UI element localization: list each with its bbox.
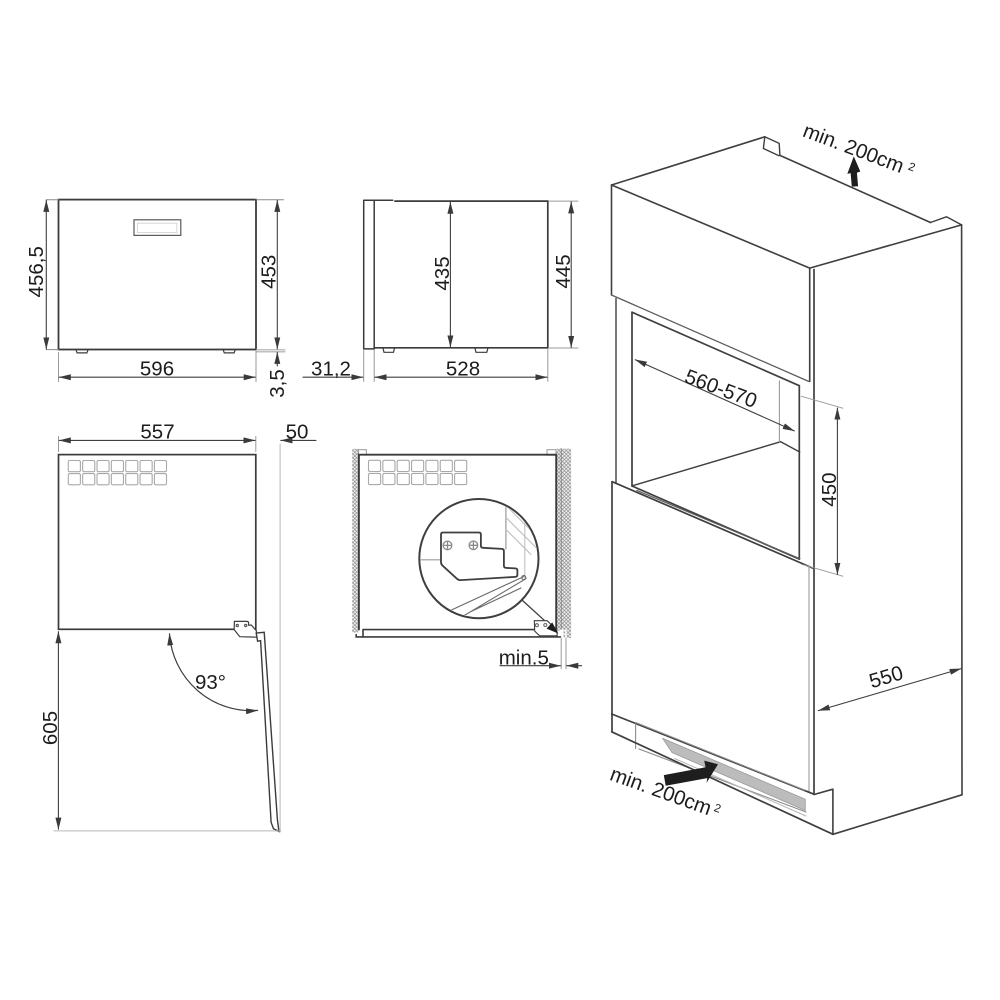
svg-text:50: 50 bbox=[286, 421, 309, 444]
svg-text:557: 557 bbox=[140, 421, 174, 444]
svg-text:31,2: 31,2 bbox=[311, 357, 351, 380]
svg-text:456,5: 456,5 bbox=[25, 246, 48, 297]
svg-text:528: 528 bbox=[446, 357, 480, 380]
svg-text:445: 445 bbox=[552, 254, 575, 288]
svg-text:605: 605 bbox=[39, 711, 62, 745]
svg-text:435: 435 bbox=[431, 256, 454, 290]
svg-text:3,5: 3,5 bbox=[266, 369, 289, 398]
svg-text:min.5: min.5 bbox=[499, 646, 549, 669]
svg-text:596: 596 bbox=[140, 357, 174, 380]
svg-text:450: 450 bbox=[818, 472, 841, 506]
svg-text:453: 453 bbox=[258, 255, 281, 289]
svg-text:93°: 93° bbox=[195, 671, 226, 694]
